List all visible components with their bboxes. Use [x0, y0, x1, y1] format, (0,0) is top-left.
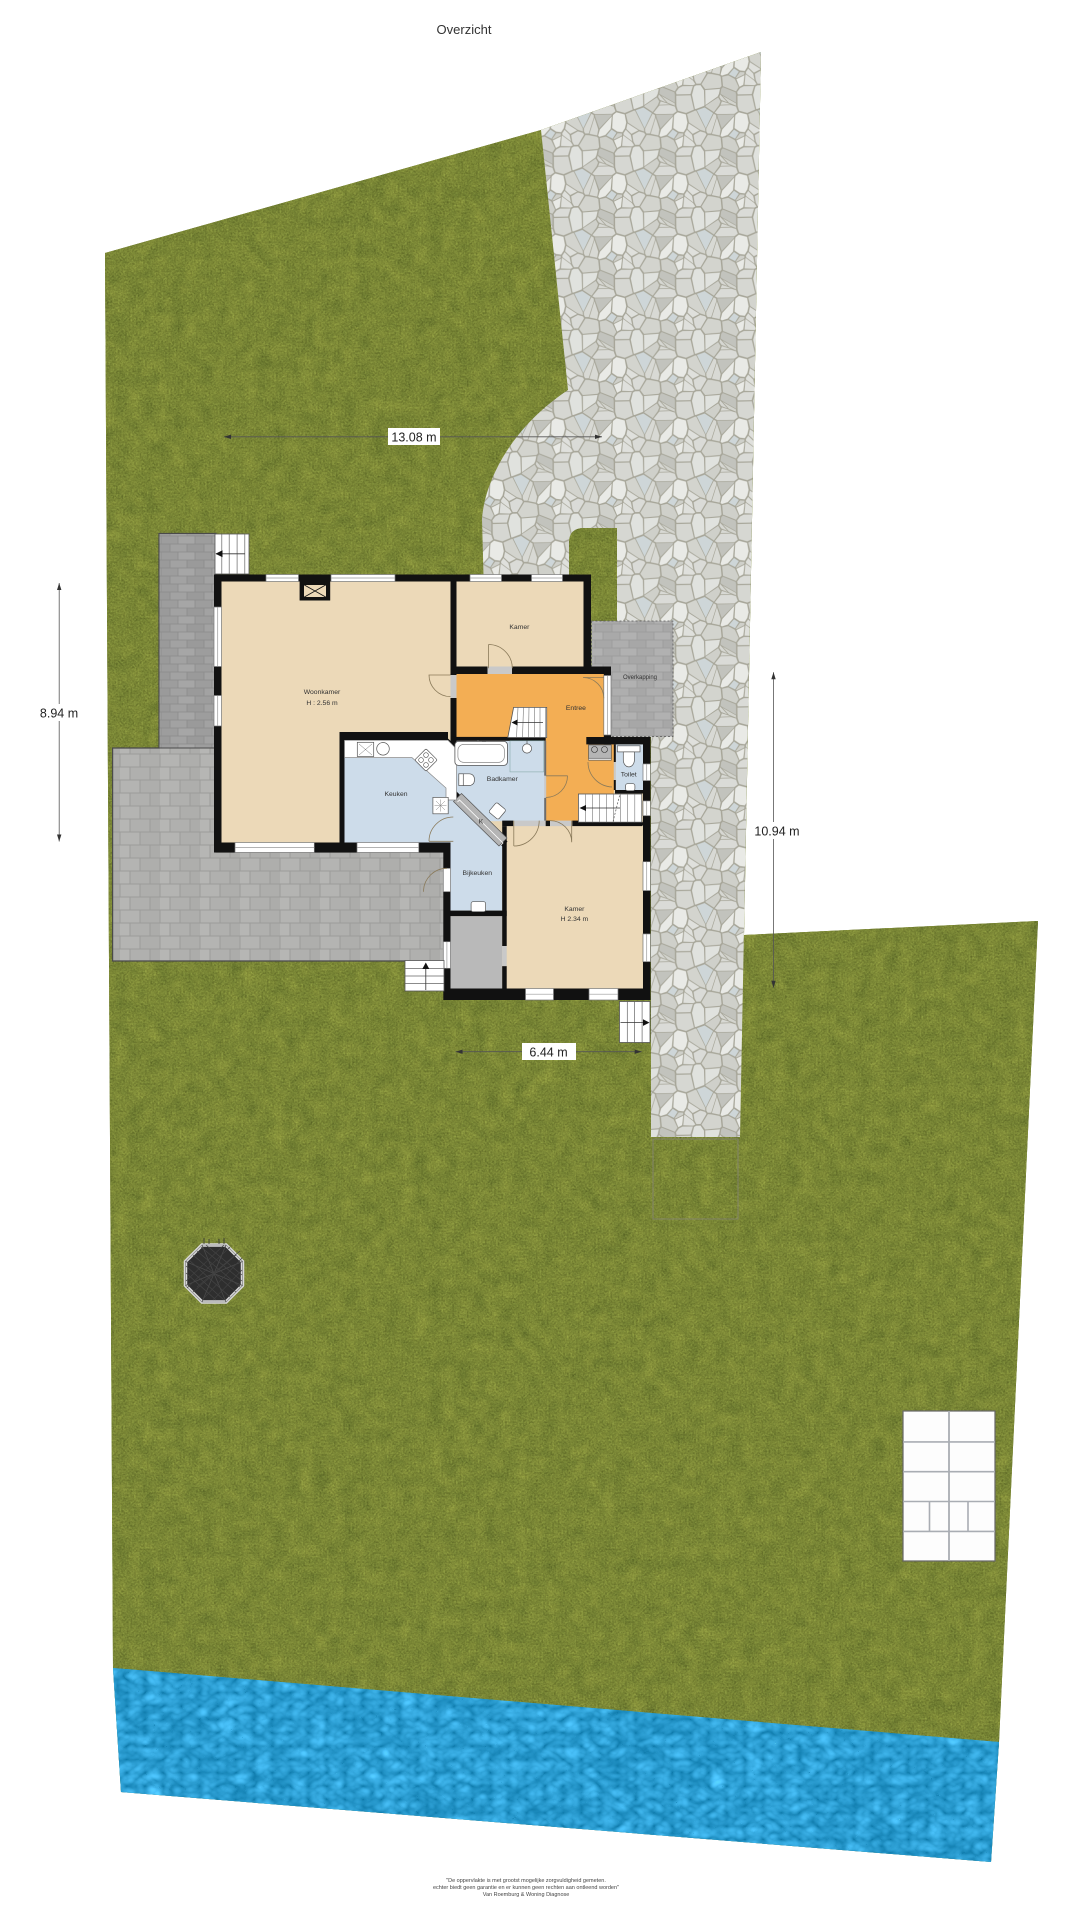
svg-text:8.94 m: 8.94 m: [40, 707, 78, 721]
svg-text:K: K: [479, 819, 484, 826]
svg-text:H 2.34 m: H 2.34 m: [561, 916, 589, 923]
svg-text:Van Roemburg & Woning Diagnose: Van Roemburg & Woning Diagnose: [483, 1892, 570, 1898]
svg-text:13.08 m: 13.08 m: [391, 431, 436, 445]
svg-text:Kamer: Kamer: [509, 624, 530, 631]
svg-text:"De oppervlakte is met grootst: "De oppervlakte is met grootst mogelijke…: [446, 1878, 606, 1884]
svg-text:Bijkeuken: Bijkeuken: [463, 870, 493, 877]
svg-text:6.44 m: 6.44 m: [529, 1046, 567, 1060]
svg-text:Toilet: Toilet: [621, 772, 637, 779]
svg-text:Entree: Entree: [566, 705, 586, 712]
svg-text:Kamer: Kamer: [564, 906, 585, 913]
svg-text:Overkapping: Overkapping: [623, 675, 657, 681]
svg-text:Woonkamer: Woonkamer: [304, 689, 341, 696]
svg-text:echter biedt geen garantie en: echter biedt geen garantie en er kunnen …: [433, 1885, 619, 1891]
svg-text:10.94 m: 10.94 m: [754, 825, 799, 839]
svg-text:Keuken: Keuken: [384, 791, 407, 798]
svg-text:Badkamer: Badkamer: [487, 776, 519, 783]
svg-text:Overzicht: Overzicht: [437, 22, 492, 37]
svg-text:H : 2.56 m: H : 2.56 m: [306, 700, 338, 707]
